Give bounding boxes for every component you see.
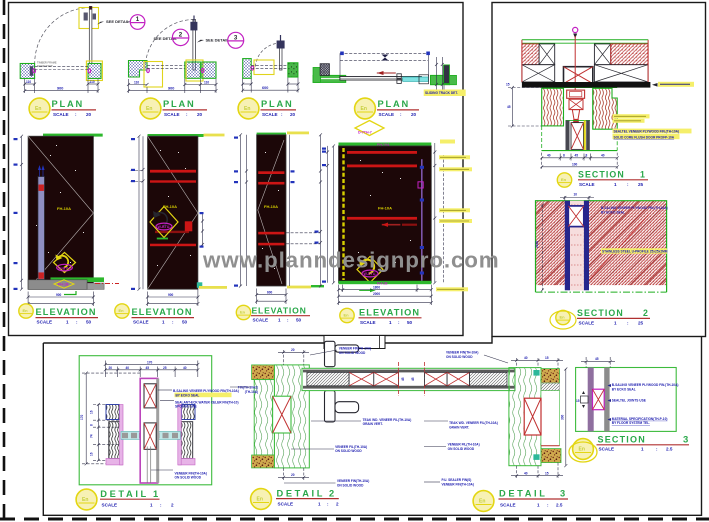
svg-text:ELEVATION: ELEVATION bbox=[252, 306, 307, 316]
svg-text:16: 16 bbox=[90, 452, 94, 456]
svg-text:ON SOLID WOOD: ON SOLID WOOD bbox=[339, 351, 366, 355]
svg-text:1: 1 bbox=[66, 320, 69, 325]
svg-text:TIMBER FRAME: TIMBER FRAME bbox=[37, 60, 57, 64]
svg-text:SCALE: SCALE bbox=[500, 502, 516, 507]
svg-text:50: 50 bbox=[182, 320, 188, 325]
svg-text:FH-1B: FH-1B bbox=[58, 283, 69, 287]
svg-text:45: 45 bbox=[507, 105, 511, 109]
svg-text:1: 1 bbox=[318, 502, 321, 507]
svg-text:1800: 1800 bbox=[373, 286, 380, 290]
svg-text:(TH-10A): (TH-10A) bbox=[245, 390, 258, 394]
svg-text:15: 15 bbox=[545, 356, 549, 360]
svg-text:B-SALING VENEER PLYWOOD FIN.(T: B-SALING VENEER PLYWOOD FIN.(TH-10A) bbox=[601, 206, 668, 210]
svg-text:W-BTU-7: W-BTU-7 bbox=[158, 225, 173, 229]
svg-text:15: 15 bbox=[506, 83, 510, 87]
svg-text:1: 1 bbox=[614, 321, 617, 326]
svg-text:2000: 2000 bbox=[373, 292, 380, 296]
svg-text:VENEER FIN(TH-10A): VENEER FIN(TH-10A) bbox=[442, 482, 474, 486]
svg-text:25: 25 bbox=[638, 321, 644, 326]
svg-text:40: 40 bbox=[183, 366, 187, 370]
svg-text:2100: 2100 bbox=[535, 241, 539, 248]
svg-text:50: 50 bbox=[407, 320, 413, 325]
svg-text:SOLID CORE FLUSH DOOR PROFP-10: SOLID CORE FLUSH DOOR PROFP-10A bbox=[614, 135, 675, 139]
svg-text:20: 20 bbox=[197, 112, 203, 117]
svg-text:1: 1 bbox=[136, 16, 140, 23]
svg-text:W-DTU-7: W-DTU-7 bbox=[364, 272, 379, 276]
svg-text:FH-10A: FH-10A bbox=[163, 204, 177, 209]
svg-text:GRAIN VERT.: GRAIN VERT. bbox=[363, 422, 383, 426]
svg-text:8: 8 bbox=[586, 154, 588, 158]
svg-text:170: 170 bbox=[80, 414, 84, 420]
svg-text:ON SOLID WOOD: ON SOLID WOOD bbox=[446, 355, 473, 359]
svg-text:74: 74 bbox=[90, 434, 94, 438]
svg-text:40: 40 bbox=[601, 154, 605, 158]
svg-text:900: 900 bbox=[168, 293, 174, 297]
svg-text:10: 10 bbox=[574, 193, 578, 197]
svg-text:3: 3 bbox=[560, 489, 567, 499]
svg-text:PLAN: PLAN bbox=[52, 99, 85, 109]
svg-text:110: 110 bbox=[90, 80, 95, 84]
svg-text:DOOR STOP: DOOR STOP bbox=[37, 64, 53, 68]
svg-text:VENEER FIN(TH-10A): VENEER FIN(TH-10A) bbox=[337, 479, 369, 483]
svg-text:900: 900 bbox=[56, 293, 62, 297]
svg-text:170: 170 bbox=[147, 360, 153, 364]
svg-text:FH-10A: FH-10A bbox=[378, 206, 392, 211]
svg-text:45: 45 bbox=[401, 377, 405, 381]
svg-text:SECTION: SECTION bbox=[598, 435, 646, 445]
svg-text:110: 110 bbox=[26, 80, 31, 84]
svg-text:VENEER FIL(TH-10A): VENEER FIL(TH-10A) bbox=[448, 443, 480, 447]
svg-text:ON SOLID WOOD: ON SOLID WOOD bbox=[448, 447, 475, 451]
svg-text:15: 15 bbox=[545, 471, 549, 475]
svg-text:VENEER FIL(TH-10A): VENEER FIL(TH-10A) bbox=[335, 445, 367, 449]
svg-text:FH-10A: FH-10A bbox=[57, 206, 71, 211]
svg-text:SCALE: SCALE bbox=[102, 502, 118, 507]
svg-text:SCALE: SCALE bbox=[579, 321, 595, 326]
svg-text:www.planndesignpro.com: www.planndesignpro.com bbox=[202, 248, 500, 273]
svg-text:SCALE: SCALE bbox=[53, 112, 69, 117]
svg-text:PLAN: PLAN bbox=[163, 99, 196, 109]
svg-text:40: 40 bbox=[524, 356, 528, 360]
svg-text:TEAK WD. VENEER FIL(TH-10A): TEAK WD. VENEER FIL(TH-10A) bbox=[449, 421, 498, 425]
svg-text:1: 1 bbox=[153, 489, 160, 499]
svg-text:BY ECKO SEAL: BY ECKO SEAL bbox=[601, 211, 625, 215]
svg-text:SCALE: SCALE bbox=[360, 320, 376, 325]
svg-text:VENEER FIN(TH-10A): VENEER FIN(TH-10A) bbox=[339, 346, 371, 350]
svg-text:1: 1 bbox=[162, 320, 165, 325]
svg-text:1: 1 bbox=[641, 447, 644, 452]
svg-text:45: 45 bbox=[146, 366, 150, 370]
svg-text:PLAN: PLAN bbox=[261, 99, 294, 109]
svg-text:45: 45 bbox=[575, 154, 579, 158]
svg-text:D-7TH-7: D-7TH-7 bbox=[358, 131, 372, 135]
svg-text:1: 1 bbox=[640, 170, 646, 180]
svg-text:40: 40 bbox=[524, 471, 528, 475]
svg-text:SCALE: SCALE bbox=[599, 447, 615, 452]
svg-text:GRAIN VERT.: GRAIN VERT. bbox=[449, 426, 469, 430]
svg-text:110: 110 bbox=[204, 81, 209, 85]
svg-text:DETAIL: DETAIL bbox=[100, 489, 148, 499]
svg-text:B-SALING VENEER PLYWOOD FIN(TH: B-SALING VENEER PLYWOOD FIN(TH-10A) bbox=[173, 389, 239, 393]
svg-text:SCALE: SCALE bbox=[164, 112, 180, 117]
svg-text:45: 45 bbox=[411, 377, 415, 381]
svg-text:STAINLESS STEEL U-PROFILE 25x2: STAINLESS STEEL U-PROFILE 25x25x2MM bbox=[602, 250, 668, 254]
svg-text:MATERIAL SPECIFICATION(TH-P-10: MATERIAL SPECIFICATION(TH-P-10) bbox=[612, 417, 668, 421]
svg-text:SCALE: SCALE bbox=[133, 320, 149, 325]
svg-text:VENEER FIN(TH-10A): VENEER FIN(TH-10A) bbox=[446, 351, 478, 355]
svg-text:600: 600 bbox=[267, 291, 273, 295]
svg-text:1: 1 bbox=[537, 502, 540, 507]
svg-text:SCALE: SCALE bbox=[253, 318, 269, 323]
svg-text:SCALE: SCALE bbox=[579, 182, 595, 187]
svg-text:3: 3 bbox=[683, 435, 689, 446]
svg-text:20: 20 bbox=[291, 348, 295, 352]
svg-text:ELEVATION: ELEVATION bbox=[359, 308, 420, 318]
svg-text:900: 900 bbox=[168, 87, 174, 91]
svg-text:25: 25 bbox=[638, 182, 644, 187]
svg-text:2.5: 2.5 bbox=[556, 502, 563, 507]
svg-text:2.5: 2.5 bbox=[666, 447, 673, 452]
svg-text:20: 20 bbox=[411, 112, 417, 117]
svg-text:20: 20 bbox=[109, 366, 113, 370]
svg-text:W-BTU-7: W-BTU-7 bbox=[58, 266, 73, 270]
svg-text:110: 110 bbox=[134, 81, 139, 85]
svg-text:SECTION: SECTION bbox=[577, 308, 624, 318]
svg-text:ON SOLID WOOD: ON SOLID WOOD bbox=[335, 449, 362, 453]
svg-text:16: 16 bbox=[90, 410, 94, 414]
svg-text:8: 8 bbox=[563, 154, 565, 158]
svg-text:TEAK WD. VENEER FIL(TH-10A): TEAK WD. VENEER FIL(TH-10A) bbox=[363, 418, 412, 422]
svg-text:BY ECKO SEAL: BY ECKO SEAL bbox=[176, 393, 200, 397]
svg-text:40: 40 bbox=[126, 366, 130, 370]
svg-text:1: 1 bbox=[389, 320, 392, 325]
svg-text:SEALTEL VENEER PLYWOOD FIN.(TH: SEALTEL VENEER PLYWOOD FIN.(TH-10A) bbox=[614, 129, 679, 133]
svg-text:8: 8 bbox=[90, 424, 94, 426]
svg-text:20: 20 bbox=[290, 112, 296, 117]
svg-text:900: 900 bbox=[57, 87, 63, 91]
svg-text:SCALE: SCALE bbox=[262, 112, 278, 117]
svg-text:SCALE: SCALE bbox=[379, 112, 395, 117]
svg-text:1: 1 bbox=[150, 502, 153, 507]
svg-text:BY ECKO SEAL: BY ECKO SEAL bbox=[612, 387, 636, 391]
svg-text:600: 600 bbox=[262, 86, 268, 90]
svg-text:ELEVATION: ELEVATION bbox=[132, 307, 193, 317]
svg-text:P.U. SEALER FIN(S): P.U. SEALER FIN(S) bbox=[442, 478, 472, 482]
svg-text:SEE DETAIL: SEE DETAIL bbox=[106, 19, 130, 24]
svg-text:B-SALING VENEER PLYWOOD FIN.(T: B-SALING VENEER PLYWOOD FIN.(TH-10A) bbox=[612, 383, 679, 387]
svg-text:SLIDING TRACK DET.: SLIDING TRACK DET. bbox=[425, 91, 458, 95]
svg-text:2: 2 bbox=[329, 488, 336, 498]
svg-text:25: 25 bbox=[163, 366, 167, 370]
svg-text:ELEVATION: ELEVATION bbox=[36, 307, 97, 317]
svg-text:300: 300 bbox=[561, 414, 565, 420]
svg-text:1: 1 bbox=[278, 318, 281, 323]
svg-text:20: 20 bbox=[86, 112, 92, 117]
svg-text:BY FLOOR SYSTEM TEL.: BY FLOOR SYSTEM TEL. bbox=[612, 421, 650, 425]
svg-text:SCALE: SCALE bbox=[278, 502, 294, 507]
svg-text:SECTION: SECTION bbox=[578, 170, 625, 180]
svg-text:DETAIL: DETAIL bbox=[499, 489, 547, 499]
svg-text:20: 20 bbox=[291, 473, 295, 477]
svg-text:SEE DETAIL: SEE DETAIL bbox=[206, 38, 230, 43]
svg-text:SPONGE LINE: SPONGE LINE bbox=[175, 405, 197, 409]
svg-text:50: 50 bbox=[86, 320, 92, 325]
svg-text:15: 15 bbox=[576, 399, 580, 403]
svg-text:SEALTEL JOINTS USE: SEALTEL JOINTS USE bbox=[612, 399, 646, 403]
svg-text:2: 2 bbox=[171, 502, 174, 507]
svg-text:FH-10A: FH-10A bbox=[264, 204, 278, 209]
svg-text:2: 2 bbox=[643, 308, 649, 318]
svg-text:100: 100 bbox=[572, 162, 578, 166]
svg-text:ON SOLID WOOD: ON SOLID WOOD bbox=[337, 483, 364, 487]
svg-text:40: 40 bbox=[547, 154, 551, 158]
svg-text:1: 1 bbox=[614, 182, 617, 187]
svg-text:50: 50 bbox=[296, 318, 302, 323]
svg-text:45: 45 bbox=[595, 357, 599, 361]
svg-text:ON SOLID WOOD: ON SOLID WOOD bbox=[175, 476, 202, 480]
svg-text:2: 2 bbox=[336, 502, 339, 507]
svg-text:2: 2 bbox=[179, 31, 183, 38]
svg-text:PLAN: PLAN bbox=[378, 99, 411, 109]
svg-text:SCALE: SCALE bbox=[37, 320, 53, 325]
svg-text:3: 3 bbox=[234, 34, 238, 41]
svg-text:DETAIL: DETAIL bbox=[277, 488, 325, 498]
